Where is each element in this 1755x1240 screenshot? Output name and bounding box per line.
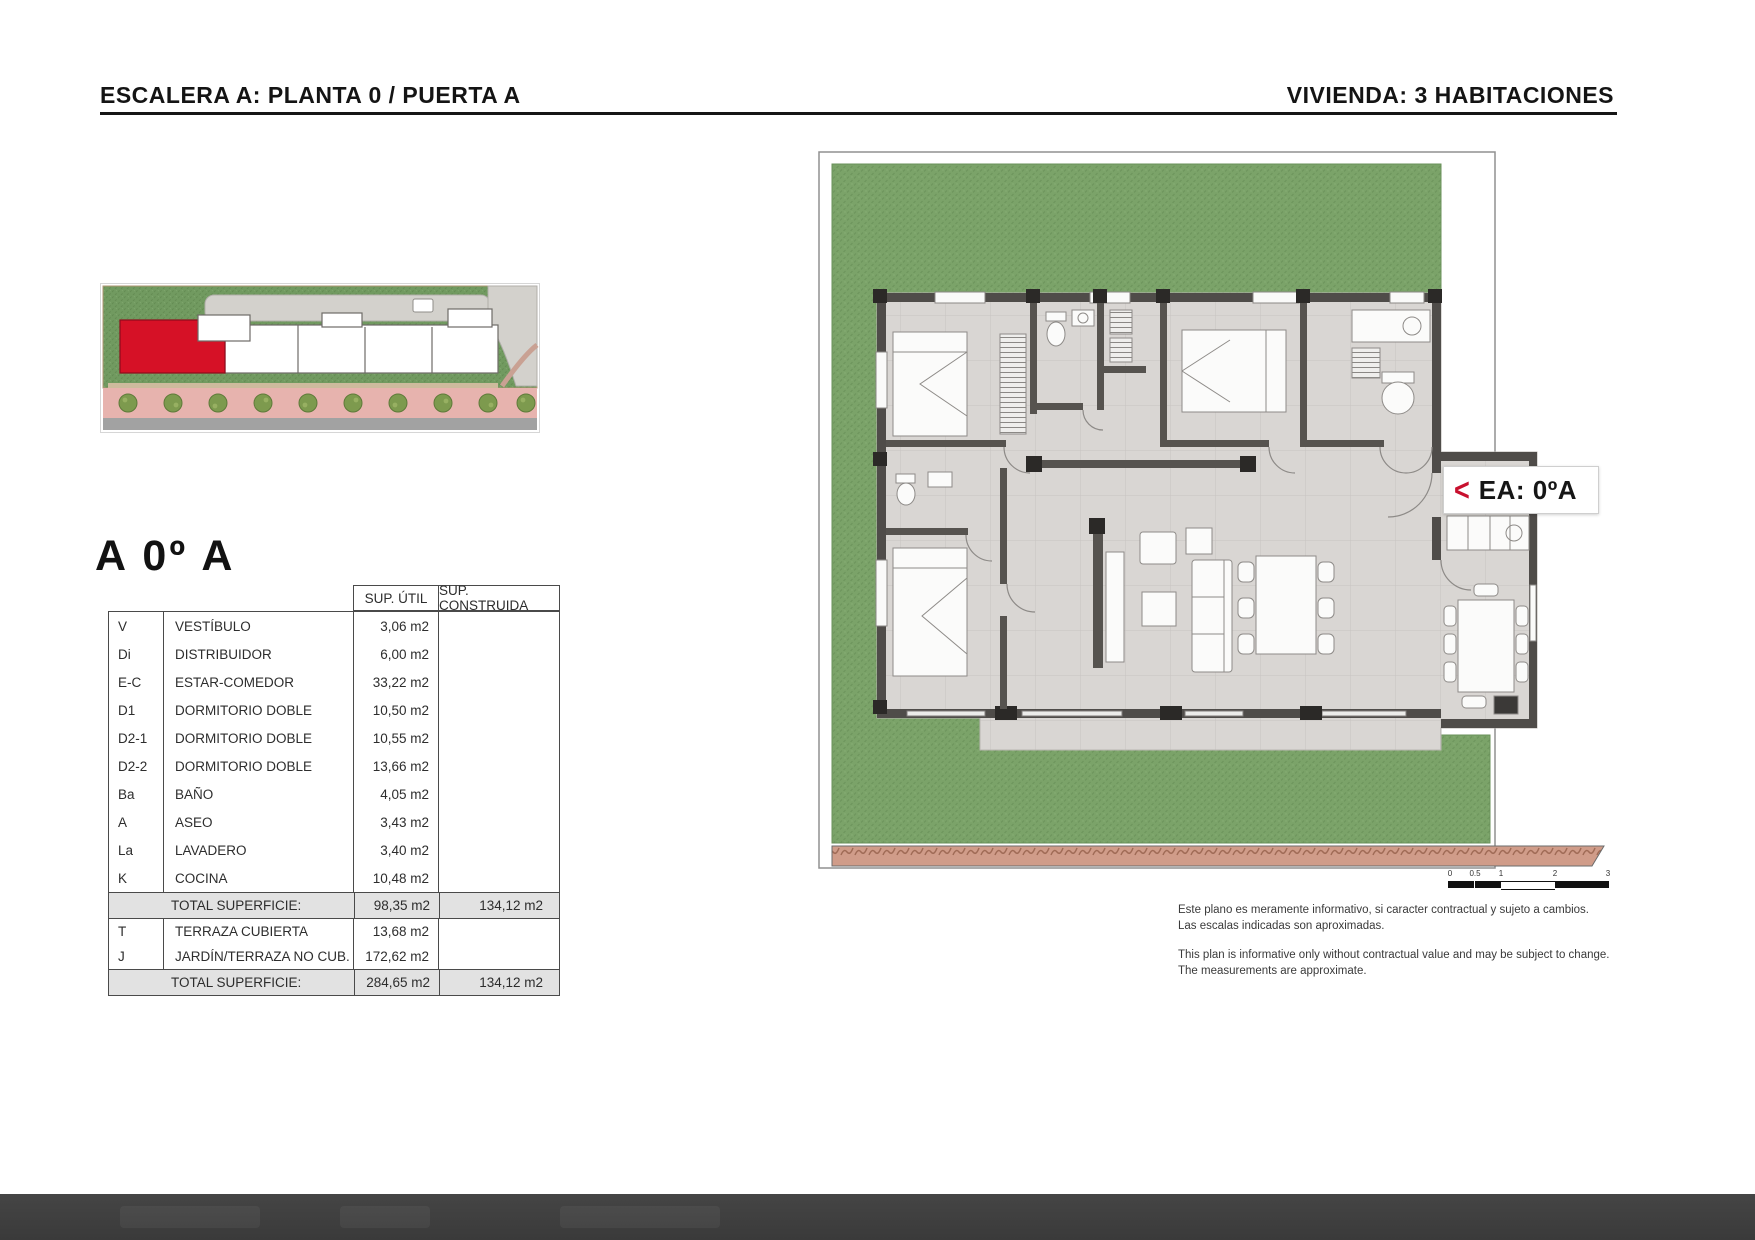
room-code: La	[109, 836, 164, 864]
room-code: D1	[109, 696, 164, 724]
table-row: E-C ESTAR-COMEDOR 33,22 m2	[109, 668, 559, 696]
room-name: DISTRIBUIDOR	[164, 640, 354, 668]
room-name: BAÑO	[164, 780, 354, 808]
room-built-area	[439, 696, 559, 724]
room-name: VESTÍBULO	[164, 612, 354, 640]
total-util-value: 98,35 m2	[354, 893, 439, 918]
room-built-area	[439, 640, 559, 668]
bed-d1	[1182, 330, 1286, 412]
table-row: D2-1 DORMITORIO DOBLE 10,55 m2	[109, 724, 559, 752]
bed-d2-2	[893, 332, 967, 436]
room-area: 13,68 m2	[354, 919, 439, 944]
room-area: 3,43 m2	[354, 808, 439, 836]
table-row: A ASEO 3,43 m2	[109, 808, 559, 836]
room-code: Di	[109, 640, 164, 668]
areas-table-header: SUP. ÚTIL SUP. CONSTRUIDA	[353, 585, 560, 611]
room-code: T	[109, 919, 164, 944]
scale-tick: 0	[1448, 869, 1452, 878]
col-header-sup-construida: SUP. CONSTRUIDA	[439, 586, 559, 610]
scale-tick: 2	[1553, 869, 1557, 878]
boundary-wall-hatch	[832, 846, 1604, 866]
room-built-area	[439, 808, 559, 836]
grand-total-built-value: 134,12 m2	[439, 970, 559, 995]
room-built-area	[439, 836, 559, 864]
room-built-area	[439, 612, 559, 640]
disclaimer-en-line2: The measurements are approximate.	[1178, 964, 1618, 980]
room-name: DORMITORIO DOBLE	[164, 752, 354, 780]
room-name: COCINA	[164, 864, 354, 892]
sofa	[1192, 560, 1232, 672]
scale-bar: 0 0.5 1 2 3	[1448, 869, 1610, 895]
room-name: DORMITORIO DOBLE	[164, 696, 354, 724]
room-code: Ba	[109, 780, 164, 808]
tv-sideboard	[1106, 552, 1124, 662]
room-built-area	[439, 780, 559, 808]
room-name: ASEO	[164, 808, 354, 836]
table-row: K COCINA 10,48 m2	[109, 864, 559, 892]
site-road	[103, 418, 537, 430]
room-code: V	[109, 612, 164, 640]
page-title: ESCALERA A: PLANTA 0 / PUERTA A	[100, 82, 521, 109]
coffee-table	[1142, 592, 1176, 626]
room-built-area	[439, 752, 559, 780]
room-area: 10,48 m2	[354, 864, 439, 892]
unit-location-arrow-icon: <	[1454, 472, 1470, 508]
room-area: 3,40 m2	[354, 836, 439, 864]
dining-table	[1238, 556, 1334, 654]
total-label: TOTAL SUPERFICIE:	[109, 893, 354, 918]
room-area: 13,66 m2	[354, 752, 439, 780]
outdoor-areas-block: T TERRAZA CUBIERTA 13,68 m2 J JARDÍN/TER…	[108, 919, 560, 970]
disclaimer-es-line1: Este plano es meramente informativo, si …	[1178, 903, 1618, 919]
room-code: A	[109, 808, 164, 836]
room-code: J	[109, 944, 164, 969]
areas-table: SUP. ÚTIL SUP. CONSTRUIDA V VESTÍBULO 3,…	[108, 585, 560, 996]
plan-sheet: ESCALERA A: PLANTA 0 / PUERTA A VIVIENDA…	[0, 0, 1755, 1240]
table-row: Ba BAÑO 4,05 m2	[109, 780, 559, 808]
room-built-area	[439, 864, 559, 892]
scale-tick: 0.5	[1469, 869, 1480, 878]
table-row: T TERRAZA CUBIERTA 13,68 m2	[109, 919, 559, 944]
dwelling-type-title: VIVIENDA: 3 HABITACIONES	[1287, 82, 1614, 109]
room-code: D2-2	[109, 752, 164, 780]
disclaimer-en-line1: This plan is informative only without co…	[1178, 948, 1618, 964]
room-name: TERRAZA CUBIERTA	[164, 919, 354, 944]
grand-total-label: TOTAL SUPERFICIE:	[109, 970, 354, 995]
grand-total-row: TOTAL SUPERFICIE: 284,65 m2 134,12 m2	[108, 970, 560, 996]
table-row: D2-2 DORMITORIO DOBLE 13,66 m2	[109, 752, 559, 780]
room-built-area	[439, 919, 559, 944]
header-rule	[100, 112, 1617, 115]
scale-tick: 1	[1499, 869, 1503, 878]
table-row: Di DISTRIBUIDOR 6,00 m2	[109, 640, 559, 668]
armchair	[1140, 532, 1176, 564]
site-location-map	[100, 283, 540, 433]
table-row: J JARDÍN/TERRAZA NO CUB. 172,62 m2	[109, 944, 559, 969]
table-row: La LAVADERO 3,40 m2	[109, 836, 559, 864]
room-area: 10,55 m2	[354, 724, 439, 752]
room-area: 6,00 m2	[354, 640, 439, 668]
room-code: D2-1	[109, 724, 164, 752]
room-built-area	[439, 724, 559, 752]
scale-bar-segments	[1448, 881, 1610, 888]
room-area: 172,62 m2	[354, 944, 439, 969]
room-name: ESTAR-COMEDOR	[164, 668, 354, 696]
disclaimer: Este plano es meramente informativo, si …	[1178, 903, 1618, 979]
grand-total-util-value: 284,65 m2	[354, 970, 439, 995]
table-row: D1 DORMITORIO DOBLE 10,50 m2	[109, 696, 559, 724]
planter	[1494, 696, 1518, 714]
unit-entrance-label: < EA: 0ºA	[1443, 466, 1599, 514]
room-name: LAVADERO	[164, 836, 354, 864]
viewer-footer-bar	[0, 1194, 1755, 1240]
closet	[1000, 334, 1026, 434]
room-area: 10,50 m2	[354, 696, 439, 724]
room-code: E-C	[109, 668, 164, 696]
disclaimer-es-line2: Las escalas indicadas son aproximadas.	[1178, 919, 1618, 935]
unit-entrance-text: EA: 0ºA	[1479, 475, 1577, 506]
room-area: 3,06 m2	[354, 612, 439, 640]
bed-d2-1	[893, 548, 967, 676]
room-built-area	[439, 944, 559, 969]
col-header-sup-util: SUP. ÚTIL	[354, 586, 439, 610]
areas-table-body: V VESTÍBULO 3,06 m2 Di DISTRIBUIDOR 6,00…	[108, 611, 560, 893]
room-name: JARDÍN/TERRAZA NO CUB.	[164, 944, 354, 969]
table-row: V VESTÍBULO 3,06 m2	[109, 612, 559, 640]
car-icon	[413, 299, 433, 312]
room-built-area	[439, 668, 559, 696]
room-area: 4,05 m2	[354, 780, 439, 808]
room-name: DORMITORIO DOBLE	[164, 724, 354, 752]
room-code: K	[109, 864, 164, 892]
side-table	[1186, 528, 1212, 554]
room-area: 33,22 m2	[354, 668, 439, 696]
total-built-value: 134,12 m2	[439, 893, 559, 918]
total-row: TOTAL SUPERFICIE: 98,35 m2 134,12 m2	[108, 893, 560, 919]
scale-tick: 3	[1606, 869, 1610, 878]
unit-code-title: A 0º A	[95, 532, 235, 581]
